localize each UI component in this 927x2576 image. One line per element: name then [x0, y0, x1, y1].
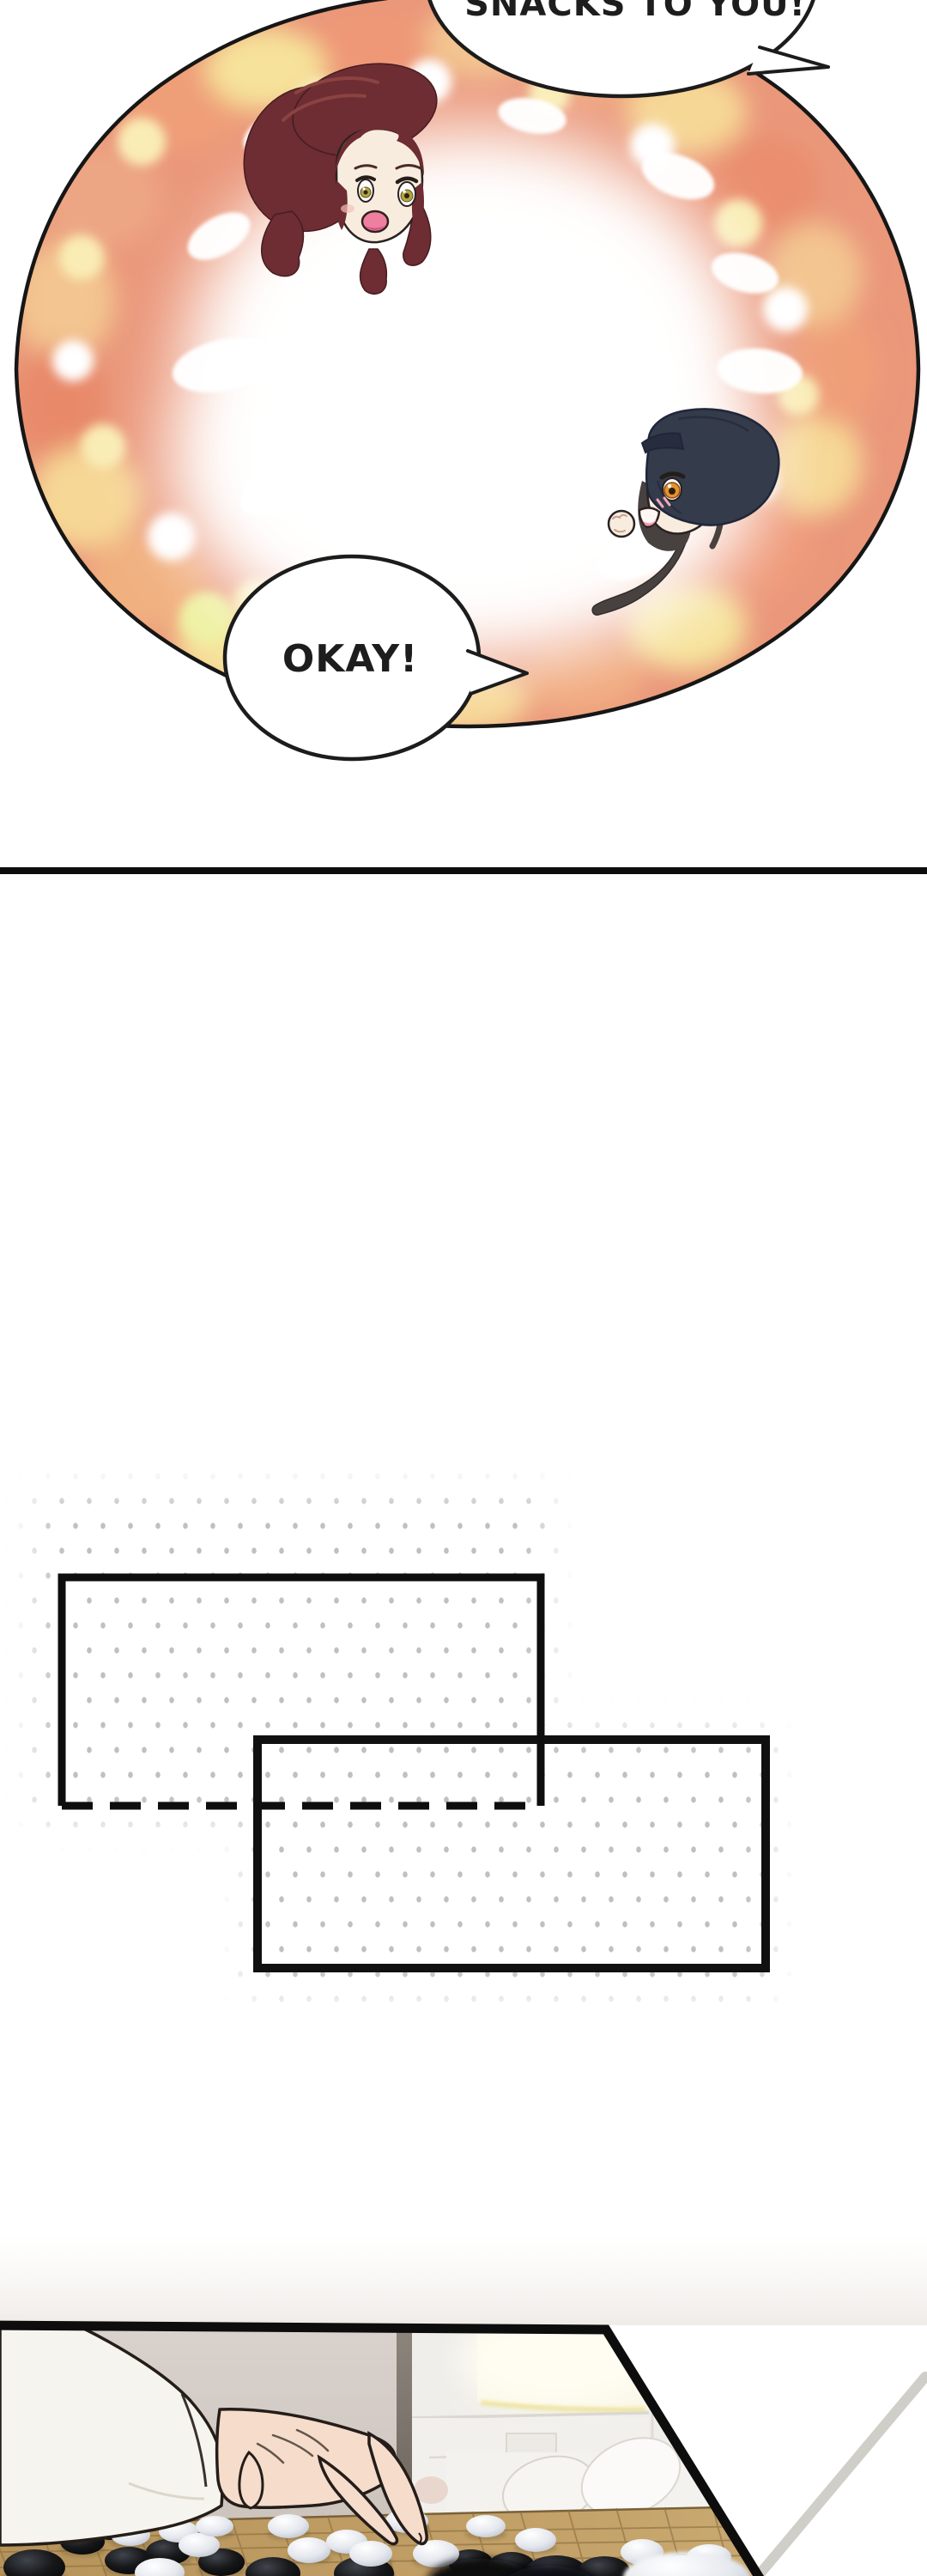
divider-line	[0, 867, 927, 874]
bubble-top-text: SNACKS TO YOU!	[464, 0, 806, 24]
comic-page: SNACKS TO YOU! OKAY!	[0, 0, 927, 2576]
sketch-section	[0, 1451, 807, 2022]
pre-panel-gradient	[0, 2229, 927, 2325]
background-diagonal-line	[759, 2377, 925, 2575]
panel-flashback-oval: SNACKS TO YOU! OKAY!	[0, 0, 927, 759]
panel-go-board	[0, 2229, 927, 2576]
comic-artwork: SNACKS TO YOU! OKAY!	[0, 0, 927, 2576]
newsboy-cap	[646, 409, 779, 525]
fist	[609, 511, 634, 537]
polka-dot-field-2	[215, 1696, 807, 2022]
bubble-okay-text: OKAY!	[282, 637, 418, 681]
blush	[341, 204, 354, 213]
